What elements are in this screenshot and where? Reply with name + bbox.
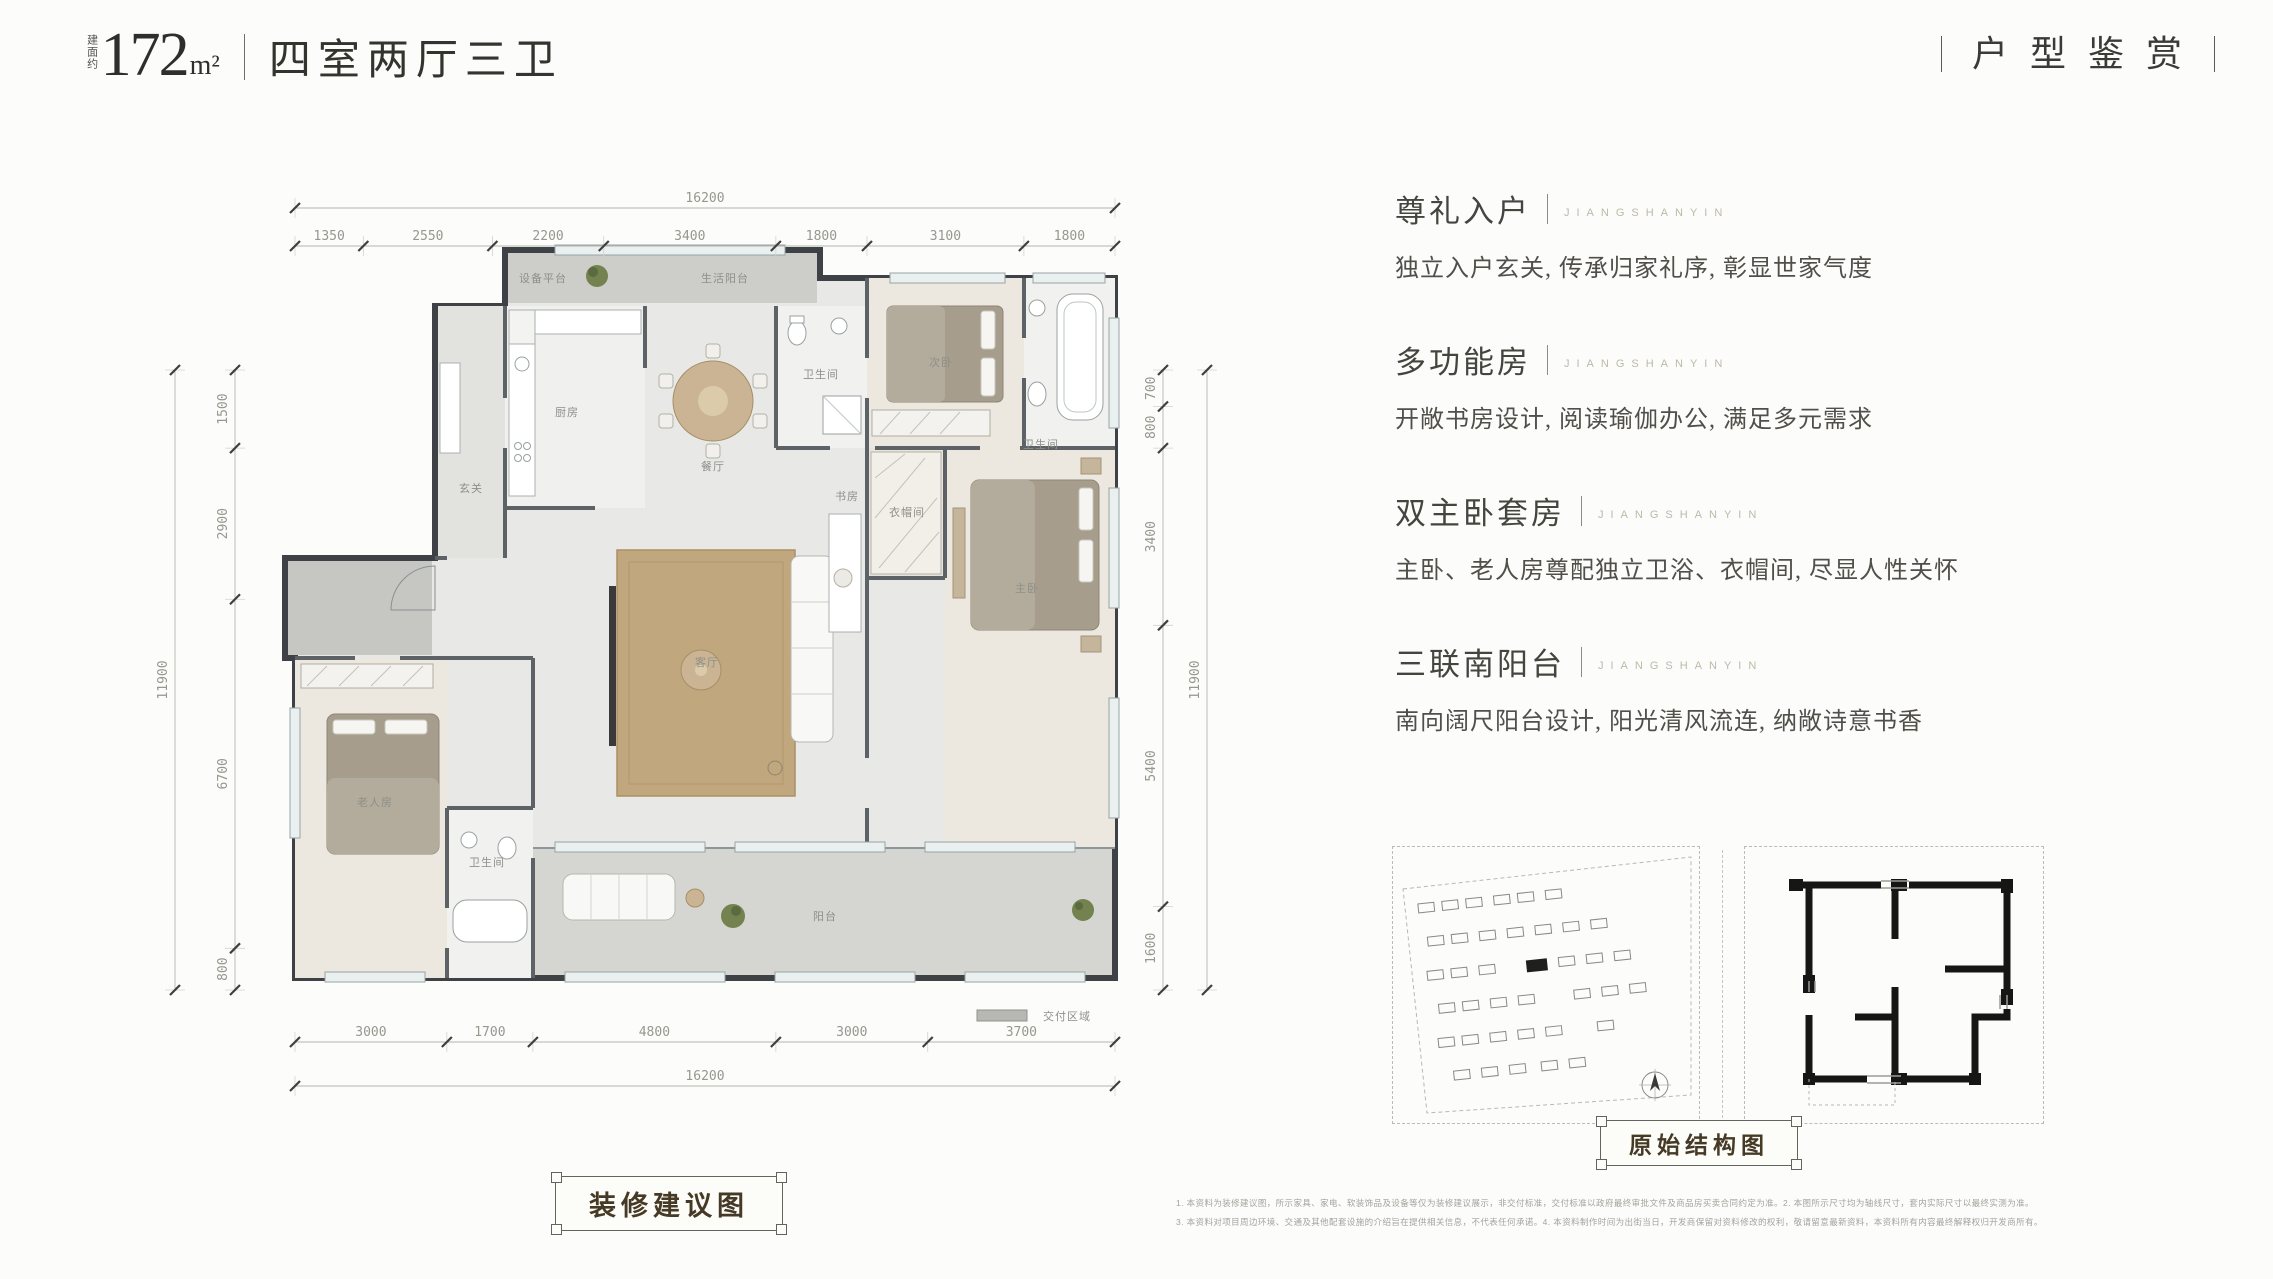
feature-divider: [1547, 345, 1548, 375]
plan-caption: 装修建议图: [589, 1191, 749, 1221]
svg-text:1800: 1800: [806, 229, 837, 244]
site-plan-diagram: [1392, 846, 1700, 1124]
svg-text:2550: 2550: [412, 229, 443, 244]
header-area-block: 建面约 172 m² 四室两厅三卫: [85, 28, 563, 84]
svg-text:16200: 16200: [685, 1069, 724, 1084]
corner-ornament: [776, 1224, 787, 1235]
area-unit: m²: [190, 50, 220, 84]
disclaimer: 1. 本资料为装修建议图，所示家具、家电、软装饰品及设备等仅为装修建议展示，非交…: [1176, 1194, 2264, 1231]
structure-columns: [1789, 879, 2013, 1085]
site-plan-svg: [1393, 847, 1699, 1123]
corner-ornament: [1791, 1116, 1802, 1127]
svg-text:客厅: 客厅: [695, 655, 719, 669]
building-row: [1453, 1057, 1585, 1080]
svg-text:6700: 6700: [216, 758, 231, 789]
svg-text:11900: 11900: [156, 660, 171, 699]
svg-text:玄关: 玄关: [459, 481, 483, 495]
feature-desc: 南向阔尺阳台设计, 阳光清风流连, 纳敞诗意书香: [1395, 701, 2085, 736]
building-row: [1427, 918, 1607, 946]
structure-walls: [1793, 885, 2007, 1079]
feature-desc: 独立入户玄关, 传承归家礼序, 彰显世家气度: [1395, 248, 2085, 283]
disclaimer-line-2: 3. 本资料对项目周边环境、交通及其他配套设施的介绍旨在提供相关信息，不代表任何…: [1176, 1213, 2264, 1232]
svg-text:3000: 3000: [355, 1025, 386, 1040]
svg-text:1600: 1600: [1144, 933, 1159, 964]
master-bedroom-furniture: [953, 458, 1101, 652]
feature-brand-tag: JIANGSHANYIN: [1598, 501, 1763, 521]
svg-text:3000: 3000: [836, 1025, 867, 1040]
floor-plan: 设备平台 生活阳台 厨房 餐厅 玄关 卫生间 次卧 卫生间 衣帽间 主卧 客厅 …: [135, 158, 1275, 1123]
svg-text:老人房: 老人房: [357, 796, 393, 809]
diagram-divider: [1722, 850, 1723, 1118]
svg-text:卫生间: 卫生间: [1023, 437, 1059, 451]
corner-ornament: [551, 1172, 562, 1183]
svg-text:3700: 3700: [1006, 1025, 1037, 1040]
svg-text:16200: 16200: [685, 191, 724, 206]
feature-title: 双主卧套房: [1395, 488, 1565, 533]
svg-text:700: 700: [1144, 376, 1159, 399]
title-right-bar: [2214, 36, 2215, 72]
study-desk: [829, 514, 861, 632]
svg-text:800: 800: [216, 957, 231, 980]
svg-text:次卧: 次卧: [929, 355, 953, 369]
svg-text:主卧: 主卧: [1015, 582, 1039, 595]
svg-text:卫生间: 卫生间: [469, 855, 505, 869]
area-value: 172: [101, 28, 188, 84]
svg-text:11900: 11900: [1188, 660, 1203, 699]
svg-text:生活阳台: 生活阳台: [701, 271, 749, 285]
svg-text:阳台: 阳台: [813, 909, 837, 923]
floor-plan-panel: 设备平台 生活阳台 厨房 餐厅 玄关 卫生间 次卧 卫生间 衣帽间 主卧 客厅 …: [135, 158, 1275, 1123]
plan-caption-box: 装修建议图: [555, 1176, 783, 1231]
svg-text:2200: 2200: [532, 229, 563, 244]
svg-text:衣帽间: 衣帽间: [889, 505, 925, 519]
svg-text:3400: 3400: [1144, 521, 1159, 552]
feature-divider: [1581, 647, 1582, 677]
feature-brand-tag: JIANGSHANYIN: [1598, 652, 1763, 672]
structure-plan-diagram: [1744, 846, 2044, 1124]
feature-multifunction-room: 多功能房 JIANGSHANYIN 开敞书房设计, 阅读瑜伽办公, 满足多元需求: [1395, 337, 2085, 434]
svg-text:2900: 2900: [216, 508, 231, 539]
svg-text:厨房: 厨房: [555, 406, 579, 419]
svg-text:1800: 1800: [1054, 229, 1085, 244]
compass-icon: [1639, 1069, 1671, 1101]
feature-list: 尊礼入户 JIANGSHANYIN 独立入户玄关, 传承归家礼序, 彰显世家气度…: [1395, 186, 2085, 790]
header-page-title-block: 户型鉴赏: [1941, 36, 2215, 72]
layout-title: 四室两厅三卫: [269, 40, 563, 84]
svg-text:4800: 4800: [639, 1025, 670, 1040]
feature-desc: 主卧、老人房尊配独立卫浴、衣帽间, 尽显人性关怀: [1395, 550, 2085, 585]
page-title: 户型鉴赏: [1972, 36, 2204, 72]
feature-south-balcony: 三联南阳台 JIANGSHANYIN 南向阔尺阳台设计, 阳光清风流连, 纳敞诗…: [1395, 639, 2085, 736]
svg-text:3400: 3400: [674, 229, 705, 244]
disclaimer-line-1: 1. 本资料为装修建议图，所示家具、家电、软装饰品及设备等仅为装修建议展示，非交…: [1176, 1194, 2264, 1213]
feature-title: 多功能房: [1395, 337, 1531, 382]
building-row: [1438, 1020, 1614, 1047]
svg-text:3100: 3100: [930, 229, 961, 244]
structure-caption: 原始结构图: [1629, 1133, 1769, 1158]
structure-plan-svg: [1745, 847, 2043, 1123]
feature-divider: [1547, 194, 1548, 224]
svg-text:餐厅: 餐厅: [701, 459, 725, 473]
corner-ornament: [1596, 1159, 1607, 1170]
feature-desc: 开敞书房设计, 阅读瑜伽办公, 满足多元需求: [1395, 399, 2085, 434]
corner-ornament: [551, 1224, 562, 1235]
structure-caption-box: 原始结构图: [1600, 1120, 1798, 1166]
feature-entry-hall: 尊礼入户 JIANGSHANYIN 独立入户玄关, 传承归家礼序, 彰显世家气度: [1395, 186, 2085, 283]
feature-brand-tag: JIANGSHANYIN: [1564, 199, 1729, 219]
svg-text:1500: 1500: [216, 393, 231, 424]
feature-brand-tag: JIANGSHANYIN: [1564, 350, 1729, 370]
svg-text:5400: 5400: [1144, 750, 1159, 781]
svg-text:800: 800: [1144, 416, 1159, 439]
plan-legend: 交付区域: [977, 1009, 1091, 1023]
legend-label: 交付区域: [1043, 1009, 1091, 1023]
header-divider: [244, 34, 245, 80]
svg-text:设备平台: 设备平台: [519, 271, 567, 285]
bedroom-2-furniture: [872, 306, 1003, 436]
area-prefix-label: 建面约: [85, 34, 98, 84]
svg-text:书房: 书房: [835, 490, 859, 503]
building-row: [1418, 889, 1562, 913]
highlighted-building: [1526, 959, 1547, 972]
svg-text:1700: 1700: [474, 1025, 505, 1040]
svg-text:卫生间: 卫生间: [803, 367, 839, 381]
corner-ornament: [1596, 1116, 1607, 1127]
corner-ornament: [1791, 1159, 1802, 1170]
feature-double-master-suite: 双主卧套房 JIANGSHANYIN 主卧、老人房尊配独立卫浴、衣帽间, 尽显人…: [1395, 488, 2085, 585]
feature-divider: [1581, 496, 1582, 526]
svg-text:1350: 1350: [314, 229, 345, 244]
title-left-bar: [1941, 36, 1942, 72]
building-row: [1438, 983, 1646, 1014]
feature-title: 尊礼入户: [1395, 186, 1531, 231]
feature-title: 三联南阳台: [1395, 639, 1565, 684]
corner-ornament: [776, 1172, 787, 1183]
